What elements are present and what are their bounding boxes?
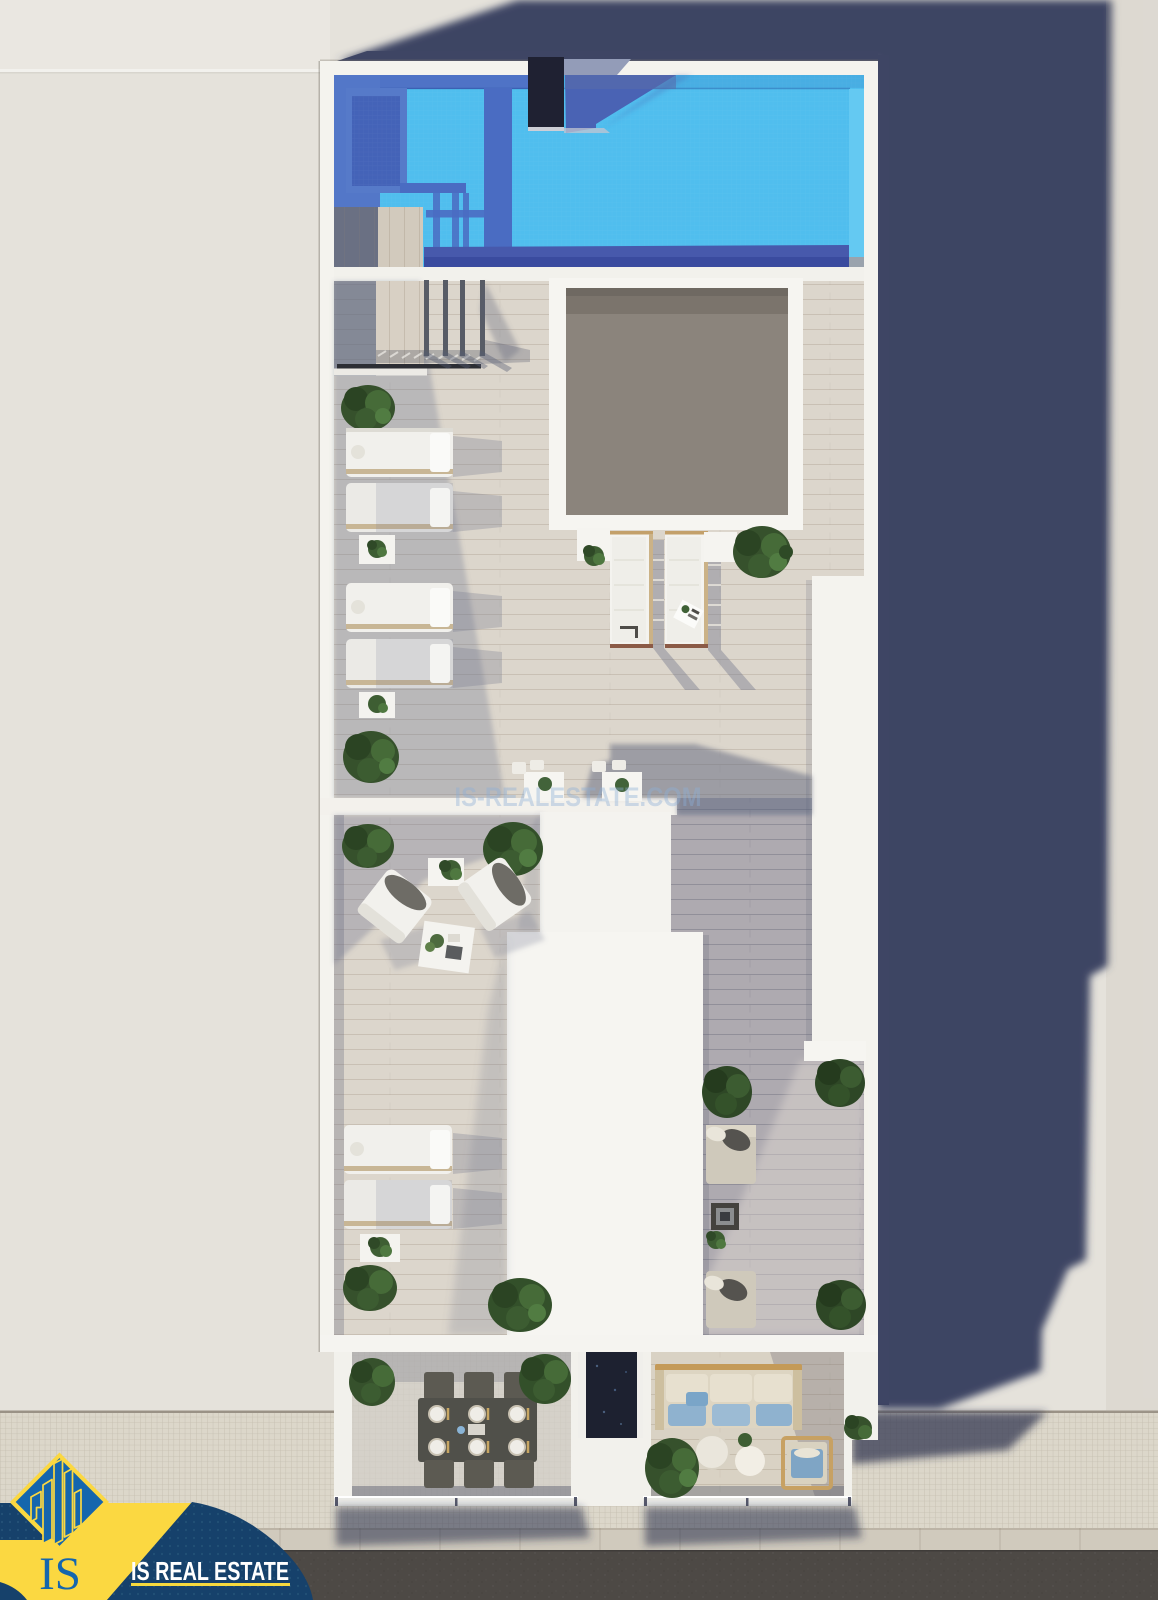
svg-text:IS REAL ESTATE: IS REAL ESTATE xyxy=(131,1558,289,1586)
svg-text:IS: IS xyxy=(39,1548,81,1600)
svg-text:IS-REALESTATE.COM: IS-REALESTATE.COM xyxy=(455,782,702,812)
